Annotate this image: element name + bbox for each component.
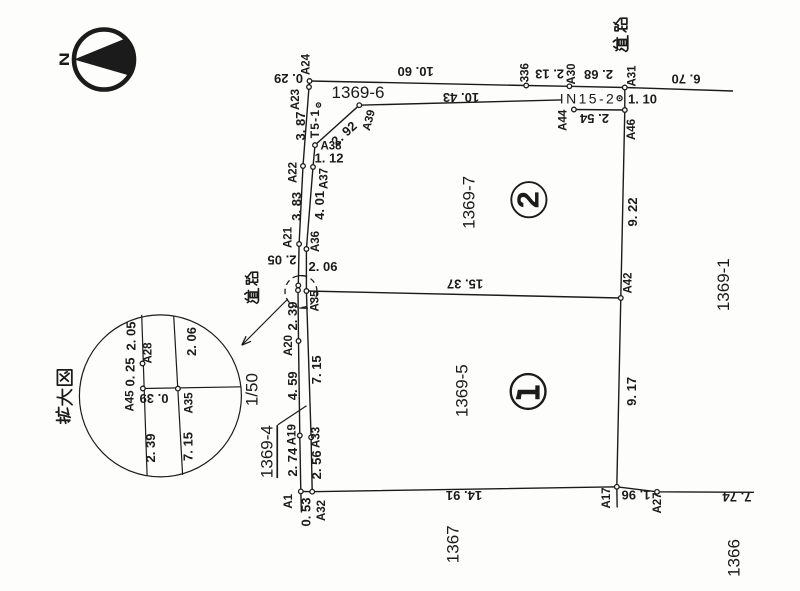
svg-text:N: N xyxy=(57,52,73,66)
svg-text:2. 06: 2. 06 xyxy=(184,327,199,356)
svg-text:14. 91: 14. 91 xyxy=(446,488,482,503)
svg-text:10. 43: 10. 43 xyxy=(443,90,479,105)
svg-text:A35: A35 xyxy=(183,392,195,414)
svg-text:0. 29: 0. 29 xyxy=(274,71,303,86)
svg-text:9. 22: 9. 22 xyxy=(625,198,640,227)
svg-text:9. 17: 9. 17 xyxy=(624,377,639,406)
svg-text:1. 96: 1. 96 xyxy=(622,488,651,503)
svg-text:1. 12: 1. 12 xyxy=(315,151,344,166)
svg-text:2. 39: 2. 39 xyxy=(285,302,300,331)
svg-text:4. 01: 4. 01 xyxy=(312,191,327,220)
svg-text:1367: 1367 xyxy=(444,525,463,563)
svg-text:0. 25: 0. 25 xyxy=(123,358,138,387)
svg-text:7. 15: 7. 15 xyxy=(181,432,196,461)
svg-text:1366: 1366 xyxy=(725,539,744,577)
svg-text:7. 15: 7. 15 xyxy=(309,355,324,384)
svg-text:A27: A27 xyxy=(652,492,664,513)
svg-text:1369-1: 1369-1 xyxy=(714,258,733,311)
svg-text:2. 05: 2. 05 xyxy=(124,322,139,351)
svg-text:2. 05: 2. 05 xyxy=(268,253,297,268)
svg-text:A28: A28 xyxy=(142,342,154,364)
svg-text:A20: A20 xyxy=(283,335,295,356)
svg-text:2. 68: 2. 68 xyxy=(584,67,613,82)
svg-text:A46: A46 xyxy=(626,119,638,140)
svg-text:0. 53: 0. 53 xyxy=(299,498,314,527)
svg-text:1369-7: 1369-7 xyxy=(459,176,478,229)
svg-text:4. 59: 4. 59 xyxy=(285,371,300,400)
svg-text:A21: A21 xyxy=(283,226,295,248)
svg-text:A33: A33 xyxy=(310,427,322,448)
svg-text:A22: A22 xyxy=(288,162,300,183)
svg-text:10. 60: 10. 60 xyxy=(398,64,434,79)
svg-text:A1: A1 xyxy=(283,493,295,508)
svg-text:A30: A30 xyxy=(566,63,578,84)
svg-text:336: 336 xyxy=(520,63,532,82)
svg-text:2: 2 xyxy=(511,191,546,208)
svg-text:A23: A23 xyxy=(290,89,302,110)
svg-text:1369-4: 1369-4 xyxy=(257,425,276,478)
svg-text:2. 13: 2. 13 xyxy=(535,67,564,82)
svg-text:6. 70: 6. 70 xyxy=(672,72,701,87)
svg-text:A32: A32 xyxy=(316,500,328,521)
svg-text:A17: A17 xyxy=(601,487,613,508)
svg-text:2. 74: 2. 74 xyxy=(285,447,300,477)
svg-text:2. 39: 2. 39 xyxy=(143,434,158,463)
svg-text:15. 37: 15. 37 xyxy=(447,277,483,292)
svg-text:7. 74: 7. 74 xyxy=(722,490,752,505)
svg-text:3. 83: 3. 83 xyxy=(289,192,304,221)
svg-text:A36: A36 xyxy=(310,231,322,252)
svg-text:3. 87: 3. 87 xyxy=(293,112,308,141)
svg-text:A37: A37 xyxy=(319,168,331,189)
svg-text:IN15-2: IN15-2 xyxy=(560,91,616,107)
svg-text:A35: A35 xyxy=(310,290,322,312)
svg-text:A31: A31 xyxy=(627,65,639,87)
svg-text:1369-5: 1369-5 xyxy=(452,364,471,417)
svg-text:2. 54: 2. 54 xyxy=(579,111,609,126)
svg-text:1369-6: 1369-6 xyxy=(332,83,385,102)
svg-text:A44: A44 xyxy=(558,109,570,131)
svg-text:1. 10: 1. 10 xyxy=(628,92,657,107)
svg-text:2. 06: 2. 06 xyxy=(309,259,338,274)
svg-text:2. 56: 2. 56 xyxy=(309,450,324,479)
svg-text:A19: A19 xyxy=(287,424,299,445)
svg-text:1/50: 1/50 xyxy=(242,373,261,406)
svg-text:T5-1: T5-1 xyxy=(308,109,322,138)
svg-text:0. 39: 0. 39 xyxy=(140,391,169,406)
svg-text:A45: A45 xyxy=(125,390,137,412)
svg-text:A42: A42 xyxy=(623,272,635,293)
